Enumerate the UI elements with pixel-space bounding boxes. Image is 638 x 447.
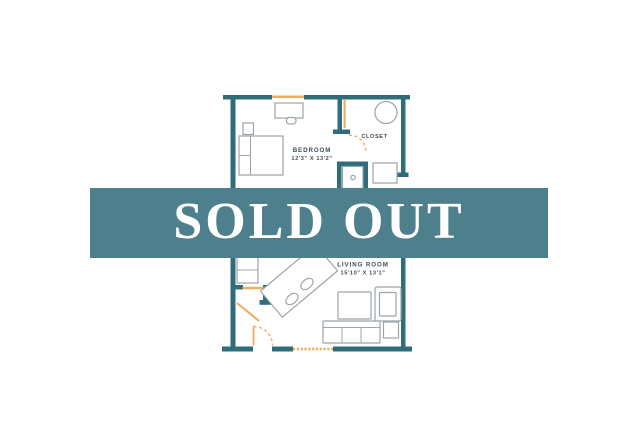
closet-shelf xyxy=(373,163,397,183)
armchair-cushion xyxy=(380,293,397,317)
bathroom-fixtures xyxy=(343,167,364,189)
sofa xyxy=(323,321,380,343)
floor-plan-card: BEDROOM 12'3" X 13'2" CLOSET LIVING ROOM… xyxy=(0,0,638,447)
entry-door-swing xyxy=(254,327,273,346)
closet-door-leaf xyxy=(344,100,346,128)
sold-out-text: SOLD OUT xyxy=(173,196,464,250)
closet-label: CLOSET xyxy=(361,134,387,140)
bedroom-label: BEDROOM xyxy=(293,147,332,154)
living-room-furniture xyxy=(323,287,401,343)
shower-drain xyxy=(351,175,355,179)
closet-fixtures xyxy=(373,102,397,184)
bedroom-window xyxy=(272,96,304,99)
nightstand xyxy=(243,123,254,135)
kitchen-bifold-door xyxy=(243,287,264,289)
desk xyxy=(275,103,303,118)
coffee-table xyxy=(338,292,371,319)
bedroom-furniture xyxy=(239,103,303,175)
bedroom-dimensions: 12'3" X 13'2" xyxy=(291,156,332,162)
living-room-label: LIVING ROOM xyxy=(337,262,389,269)
nook-door-leaf xyxy=(237,303,259,321)
sold-out-banner: SOLD OUT xyxy=(90,188,548,258)
side-table xyxy=(384,322,399,338)
desk-chair xyxy=(287,118,297,125)
living-room-dimensions: 15'10" X 13'1" xyxy=(341,271,386,277)
water-heater xyxy=(375,102,397,124)
